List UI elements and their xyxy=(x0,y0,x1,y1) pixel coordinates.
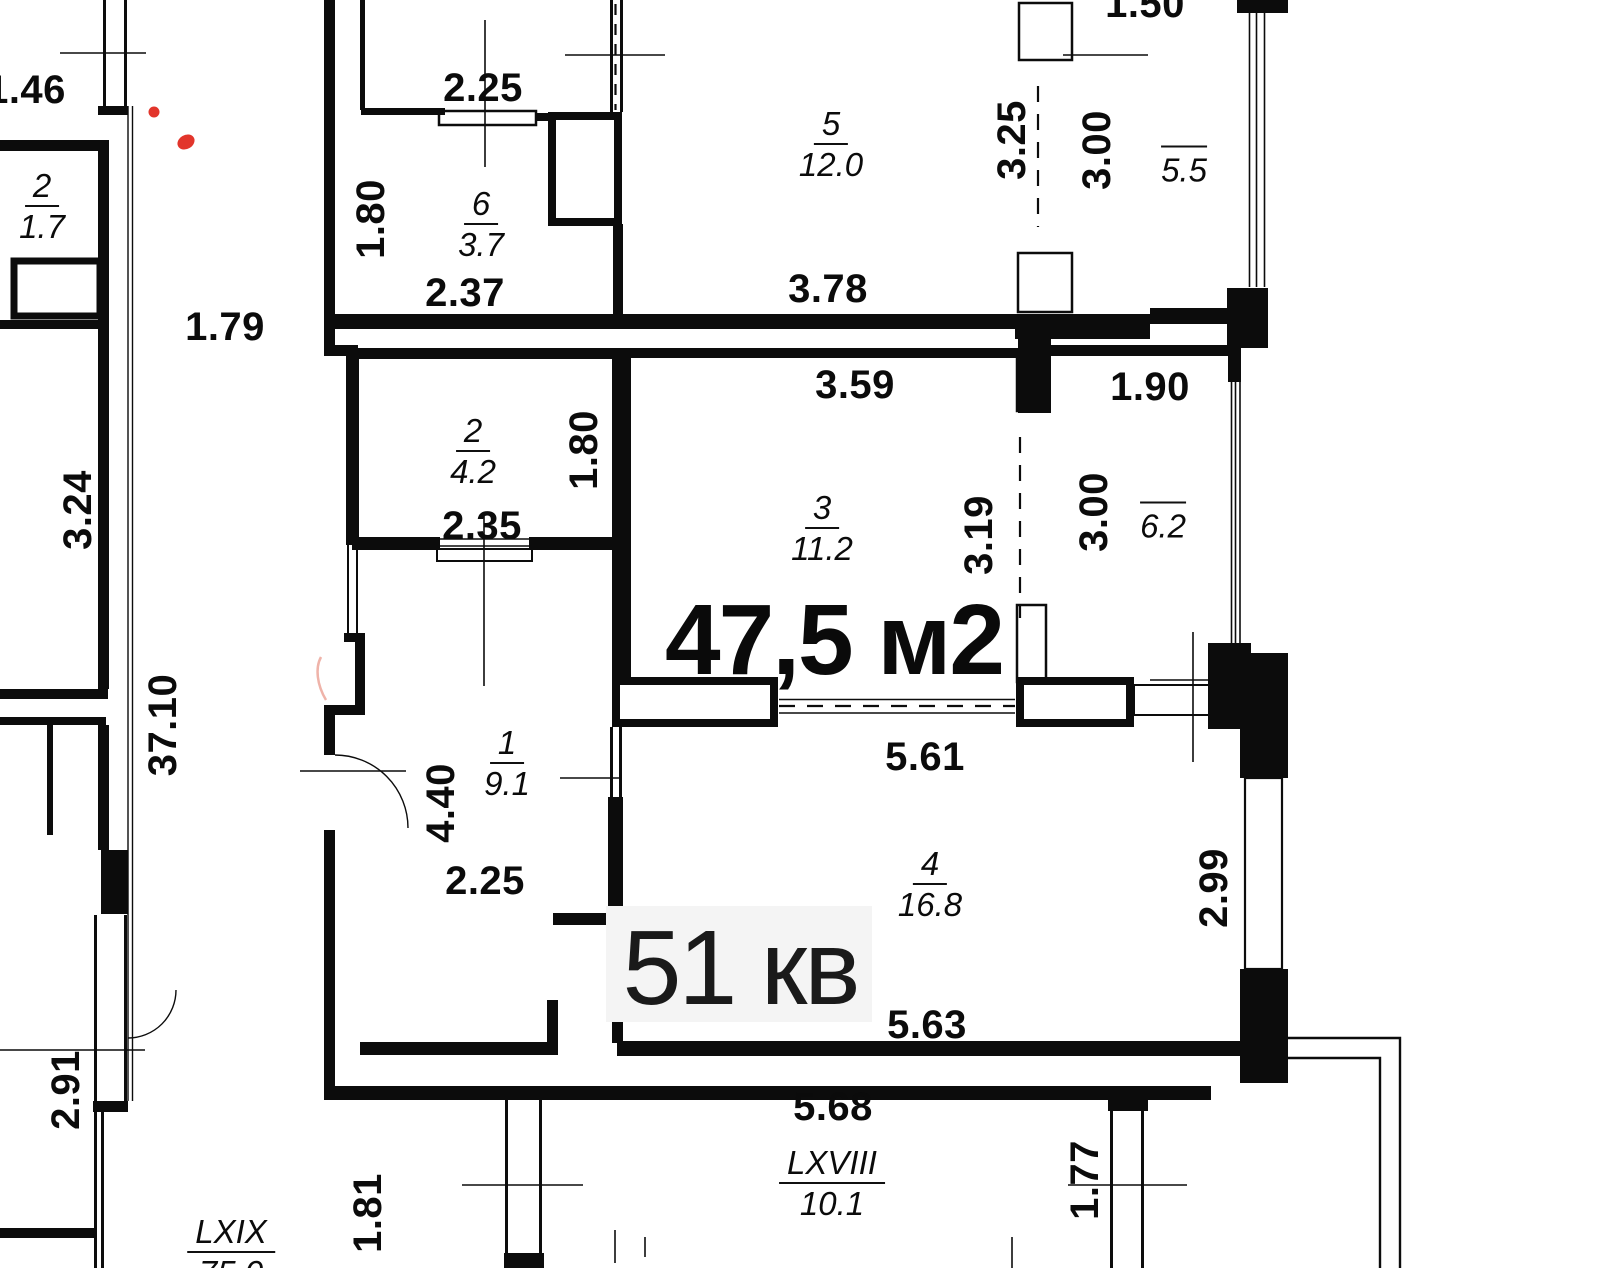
unit-number: LXVIII xyxy=(779,1146,885,1184)
room-label: 2 1.7 xyxy=(19,169,65,243)
dimension-label: 3.78 xyxy=(788,269,868,309)
balcony-area: 6.2 xyxy=(1140,502,1186,545)
room-number: 1 xyxy=(490,726,524,764)
unit-area: 10.1 xyxy=(800,1184,864,1220)
walls xyxy=(0,0,1288,1268)
dimension-label: 3.25 xyxy=(992,100,1032,180)
room-number: 3 xyxy=(805,491,839,529)
dimension-label: 1.90 xyxy=(1110,367,1190,407)
dimension-label: 1.77 xyxy=(1065,1140,1105,1220)
balcony-label: 5.5 xyxy=(1161,154,1207,187)
dimension-label: 2.25 xyxy=(443,68,523,108)
room-number: 2 xyxy=(25,169,59,207)
unit-number: LXIX xyxy=(187,1215,275,1253)
unit-label: LXIX 75.0 xyxy=(187,1215,275,1268)
dimension-label: 3.19 xyxy=(959,495,999,575)
room-area: 4.2 xyxy=(450,452,496,488)
room-label: 6 3.7 xyxy=(458,187,504,261)
room-number: 6 xyxy=(464,187,498,225)
room-number: 2 xyxy=(456,414,490,452)
dimension-label: 3.59 xyxy=(815,365,895,405)
room-label: 5 12.0 xyxy=(799,107,863,181)
room-area: 12.0 xyxy=(799,145,863,181)
red-marks xyxy=(149,107,327,701)
room-area: 16.8 xyxy=(898,885,962,921)
room-label: 3 11.2 xyxy=(791,491,853,565)
room-area: 9.1 xyxy=(484,764,530,800)
room-area: 11.2 xyxy=(791,529,853,565)
dimension-label: 1.81 xyxy=(348,1173,388,1253)
unit-label: LXVIII 10.1 xyxy=(779,1146,885,1220)
dimension-label: 1.50 xyxy=(1105,0,1185,24)
door-swings xyxy=(128,755,408,1038)
room-area: 1.7 xyxy=(19,207,65,243)
room-area: 3.7 xyxy=(458,225,504,261)
dimension-label: 3.24 xyxy=(58,470,98,550)
dimension-label: 2.91 xyxy=(46,1050,86,1130)
room-label: 1 9.1 xyxy=(484,726,530,800)
room-label: 2 4.2 xyxy=(450,414,496,488)
dimension-label: 1.46 xyxy=(0,70,66,110)
floor-plan: 1.46 2.25 1.50 1.80 2.37 3.78 3.25 3.00 … xyxy=(0,0,1600,1268)
dimension-label: 3.00 xyxy=(1077,110,1117,190)
dimension-label: 1.79 xyxy=(185,307,265,347)
dimension-label: 37.10 xyxy=(143,674,183,777)
dimension-label: 1.80 xyxy=(351,179,391,259)
dimension-label: 2.25 xyxy=(445,861,525,901)
dimension-label: 5.63 xyxy=(887,1005,967,1045)
dimension-label: 5.61 xyxy=(885,737,965,777)
dimension-label: 1.80 xyxy=(564,410,604,490)
total-area-label: 47,5 м2 xyxy=(665,590,1003,690)
dimension-label: 5.68 xyxy=(793,1087,873,1127)
dimension-label: 3.00 xyxy=(1074,472,1114,552)
room-number: 5 xyxy=(814,107,848,145)
apartment-number-label: 51 кв xyxy=(622,915,857,1021)
balcony-area: 5.5 xyxy=(1161,146,1207,189)
room-label: 4 16.8 xyxy=(898,847,962,921)
unit-area: 75.0 xyxy=(199,1253,263,1268)
dimension-label: 2.99 xyxy=(1194,848,1234,928)
room-number: 4 xyxy=(913,847,947,885)
balcony-label: 6.2 xyxy=(1140,510,1186,543)
dimension-label: 4.40 xyxy=(421,763,461,843)
dimension-label: 2.37 xyxy=(425,273,505,313)
dimension-label: 2.35 xyxy=(442,506,522,546)
